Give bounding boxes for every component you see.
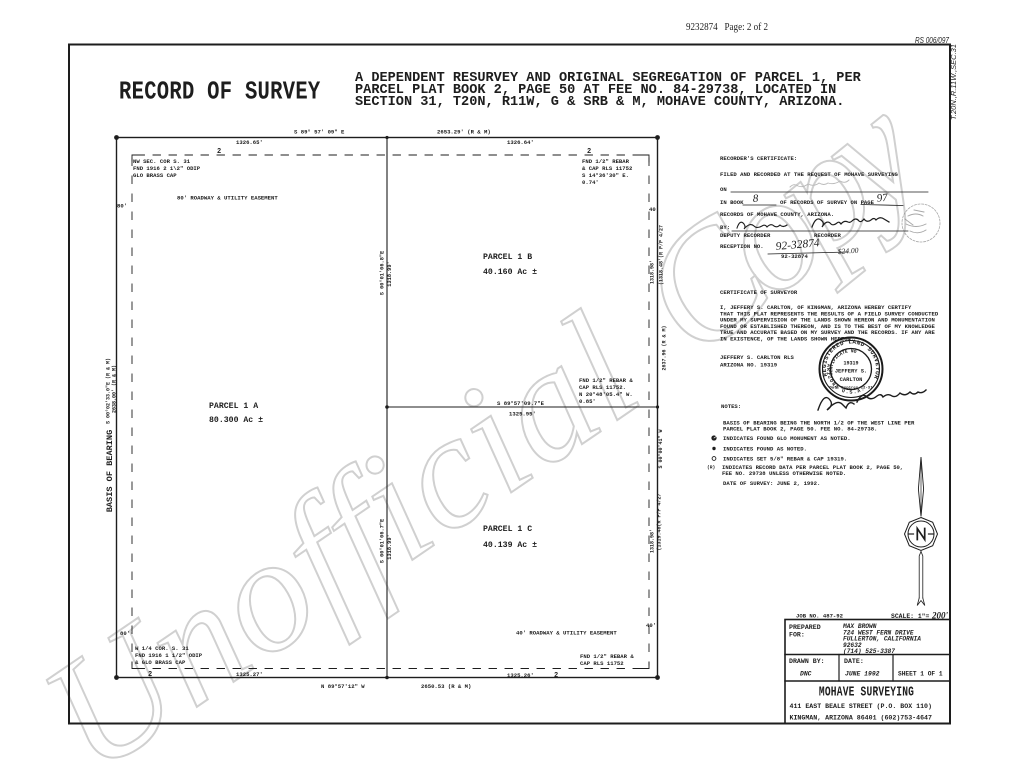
svg-text:80': 80' xyxy=(117,203,127,210)
svg-text:BY:: BY: xyxy=(720,224,730,231)
svg-text:9232874 Page: 2 of 2: 9232874 Page: 2 of 2 xyxy=(686,22,768,33)
svg-text:SHEET 1 OF 1: SHEET 1 OF 1 xyxy=(898,671,943,678)
svg-text:CAP RLS 11752.: CAP RLS 11752. xyxy=(579,384,626,391)
svg-text:DATE:: DATE: xyxy=(844,658,864,665)
svg-text:NOTES:: NOTES: xyxy=(721,403,741,410)
svg-text:Date Expires 12-31: Date Expires 12-31 xyxy=(829,386,873,391)
svg-text:1325.27': 1325.27' xyxy=(236,671,263,678)
svg-text:0.74': 0.74' xyxy=(582,179,599,186)
svg-text:2: 2 xyxy=(217,148,221,156)
svg-text:INDICATES SET 5/8" REBAR & CAP: INDICATES SET 5/8" REBAR & CAP 19319. xyxy=(723,456,847,463)
svg-text:S 00°00'41" W: S 00°00'41" W xyxy=(658,429,664,468)
svg-text:2653.29' (R & M): 2653.29' (R & M) xyxy=(437,129,491,136)
svg-text:S 89° 57' 09" E: S 89° 57' 09" E xyxy=(294,129,345,136)
svg-text:(R): (R) xyxy=(707,465,715,471)
svg-text:0.85': 0.85' xyxy=(579,398,596,405)
svg-text:(714) 525-3387: (714) 525-3387 xyxy=(843,648,895,655)
svg-text:40': 40' xyxy=(646,622,656,629)
svg-text:S 14°36'30" E.: S 14°36'30" E. xyxy=(582,172,629,179)
svg-text:& GLO BRASS CAP: & GLO BRASS CAP xyxy=(135,659,186,666)
svg-text:S 00°01'06.8"E: S 00°01'06.8"E xyxy=(380,251,386,296)
svg-text:N 89°57'12" W: N 89°57'12" W xyxy=(321,683,365,690)
svg-text:19319: 19319 xyxy=(843,361,858,367)
svg-text:MOHAVE SURVEYING: MOHAVE SURVEYING xyxy=(819,684,914,700)
svg-text:T.20N.,R.11W.,SEC.31: T.20N.,R.11W.,SEC.31 xyxy=(949,44,958,120)
svg-text:S 00°01'06.7"E: S 00°01'06.7"E xyxy=(380,519,386,564)
svg-text:CERTIFICATE OF SURVEYOR: CERTIFICATE OF SURVEYOR xyxy=(720,289,798,296)
svg-text:IN BOOK: IN BOOK xyxy=(720,199,744,206)
svg-text:JOB NO. 487-92: JOB NO. 487-92 xyxy=(796,613,844,620)
svg-text:97: 97 xyxy=(876,192,889,205)
svg-text:NW SEC. COR S. 31: NW SEC. COR S. 31 xyxy=(133,158,191,165)
svg-text:DRAWN BY:: DRAWN BY: xyxy=(789,658,825,665)
svg-text:2650.53 (R & M): 2650.53 (R & M) xyxy=(421,683,471,690)
svg-text:BASIS OF BEARING: BASIS OF BEARING xyxy=(105,430,115,513)
svg-text:40' ROADWAY & UTILITY EASEMENT: 40' ROADWAY & UTILITY EASEMENT xyxy=(516,630,617,637)
svg-text:2: 2 xyxy=(587,148,591,156)
svg-text:SECTION 31, T20N, R11W, G & SR: SECTION 31, T20N, R11W, G & SRB & M, MOH… xyxy=(355,95,844,110)
svg-text:PARCEL PLAT BOOK 2, PAGE 50. F: PARCEL PLAT BOOK 2, PAGE 50. FEE NO. 84-… xyxy=(723,426,877,433)
svg-text:RECORDS OF MOHAVE COUNTY, ARIZ: RECORDS OF MOHAVE COUNTY, ARIZONA. xyxy=(720,211,834,218)
svg-text:FND 1/2" REBAR &: FND 1/2" REBAR & xyxy=(580,653,634,660)
svg-text:2638.00' (R & M): 2638.00' (R & M) xyxy=(112,365,118,413)
svg-text:JUNE 1992: JUNE 1992 xyxy=(845,671,880,678)
svg-text:1318.98': 1318.98' xyxy=(650,529,656,553)
svg-text:40.160 Ac ±: 40.160 Ac ± xyxy=(483,268,537,277)
svg-text:KINGMAN, ARIZONA 86401 (602)75: KINGMAN, ARIZONA 86401 (602)753-4647 xyxy=(790,715,932,722)
svg-text:2: 2 xyxy=(148,671,152,679)
svg-text:92-32874: 92-32874 xyxy=(781,253,808,260)
svg-text:DEPUTY RECORDER: DEPUTY RECORDER xyxy=(720,232,771,239)
svg-text:FILED AND RECORDED AT THE REQU: FILED AND RECORDED AT THE REQUEST OF MOH… xyxy=(720,171,899,178)
svg-text:1318.99': 1318.99' xyxy=(387,534,393,559)
svg-text:INDICATES FOUND AS NOTED.: INDICATES FOUND AS NOTED. xyxy=(723,446,807,453)
svg-text:ARIZONA NO. 19319: ARIZONA NO. 19319 xyxy=(720,362,778,369)
svg-text:PARCEL 1 A: PARCEL 1 A xyxy=(209,402,258,411)
svg-text:CAP RLS 11752: CAP RLS 11752 xyxy=(580,660,624,667)
svg-text:40': 40' xyxy=(649,206,659,213)
svg-text:CARLTON: CARLTON xyxy=(840,377,863,383)
svg-text:ON: ON xyxy=(720,186,727,193)
svg-text:$24.00: $24.00 xyxy=(838,246,859,256)
svg-text:1318.98': 1318.98' xyxy=(650,260,656,284)
svg-text:DNC: DNC xyxy=(800,671,812,678)
svg-text:FND 1/2" REBAR &: FND 1/2" REBAR & xyxy=(579,377,633,384)
svg-text:1325.95': 1325.95' xyxy=(509,411,536,418)
svg-text:INDICATES FOUND GLO MONUMENT A: INDICATES FOUND GLO MONUMENT AS NOTED. xyxy=(723,435,851,442)
svg-text:JEFFERY S.: JEFFERY S. xyxy=(835,369,867,375)
svg-text:GLO BRASS CAP: GLO BRASS CAP xyxy=(133,172,177,179)
svg-text:(1319.48(R P/P 4/27: (1319.48(R P/P 4/27 xyxy=(657,493,663,550)
svg-text:OF RECORDS OF SURVEY ON PAGE: OF RECORDS OF SURVEY ON PAGE xyxy=(780,199,875,206)
svg-text:DATE OF SURVEY: JUNE 2, 1992.: DATE OF SURVEY: JUNE 2, 1992. xyxy=(723,480,820,487)
svg-text:FND 1916 1 1/2" ODIP: FND 1916 1 1/2" ODIP xyxy=(135,652,203,659)
svg-text:RECEPTION NO.: RECEPTION NO. xyxy=(720,243,764,250)
svg-text:W 1/4 COR. S. 31: W 1/4 COR. S. 31 xyxy=(135,645,189,652)
svg-text:2637.96 (R & M): 2637.96 (R & M) xyxy=(662,325,668,370)
svg-text:RECORDER'S CERTIFICATE:: RECORDER'S CERTIFICATE: xyxy=(720,155,797,162)
svg-text:2: 2 xyxy=(554,672,558,680)
svg-text:PREPARED: PREPARED xyxy=(789,624,821,631)
svg-text:PARCEL 1 C: PARCEL 1 C xyxy=(483,525,532,534)
svg-text:411 EAST BEALE STREET (P.O. BO: 411 EAST BEALE STREET (P.O. BOX 110) xyxy=(790,703,932,710)
svg-text:80' ROADWAY & UTILITY EASEMENT: 80' ROADWAY & UTILITY EASEMENT xyxy=(177,195,278,202)
svg-text:FOR:: FOR: xyxy=(789,632,805,639)
svg-text:(1318.48'(R P/P 4/27: (1318.48'(R P/P 4/27 xyxy=(659,225,665,285)
svg-text:FND 1/2" REBAR: FND 1/2" REBAR xyxy=(582,158,630,165)
svg-text:PARCEL 1 B: PARCEL 1 B xyxy=(483,253,532,262)
svg-text:S 89°57'09.7"E: S 89°57'09.7"E xyxy=(497,400,545,407)
svg-text:1318.99': 1318.99' xyxy=(387,261,393,286)
svg-text:JEFFERY S. CARLTON RLS: JEFFERY S. CARLTON RLS xyxy=(720,354,794,361)
svg-text:80.300 Ac ±: 80.300 Ac ± xyxy=(209,416,263,425)
svg-text:40.139 Ac ±: 40.139 Ac ± xyxy=(483,541,537,550)
svg-text:1326.65': 1326.65' xyxy=(236,139,263,146)
svg-text:1326.64': 1326.64' xyxy=(507,139,534,146)
svg-text:N 20°48'05.4" W.: N 20°48'05.4" W. xyxy=(579,391,633,398)
svg-text:1325.26': 1325.26' xyxy=(507,672,534,679)
svg-text:80': 80' xyxy=(120,630,130,637)
svg-text:FND 1916 2 1\2" ODIP: FND 1916 2 1\2" ODIP xyxy=(133,165,201,172)
svg-text:FEE NO. 29738 UNLESS OTHERWISE: FEE NO. 29738 UNLESS OTHERWISE NOTED. xyxy=(722,470,846,477)
svg-text:RECORD OF SURVEY: RECORD OF SURVEY xyxy=(119,77,321,107)
svg-text:& CAP RLS 11752: & CAP RLS 11752 xyxy=(582,165,633,172)
